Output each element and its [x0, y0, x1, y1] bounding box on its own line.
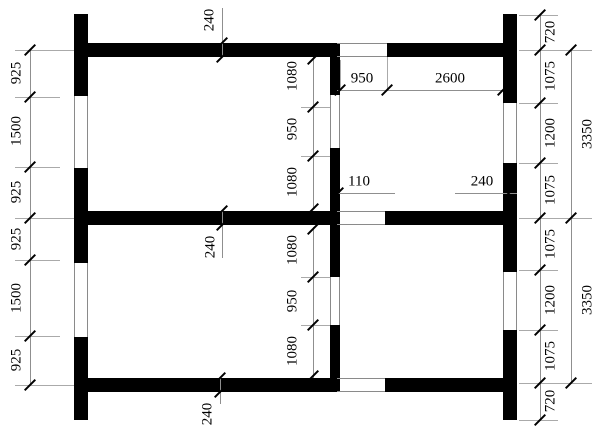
wall-bottom-left-run — [74, 378, 337, 392]
dim-label-right-8: 720 — [544, 390, 559, 413]
dim-label-total-bottom: 3350 — [581, 285, 596, 315]
dim-label-110: 110 — [348, 175, 370, 190]
ext-line — [15, 260, 60, 261]
dim-line-110 — [337, 193, 395, 194]
ext-line — [15, 385, 74, 386]
window-face — [74, 263, 75, 337]
dim-label-right-7: 1075 — [544, 341, 559, 371]
dim-label-right-1: 720 — [544, 21, 559, 44]
dim-chain-interior-lower — [313, 227, 314, 378]
dim-label-240-bottom: 240 — [201, 403, 216, 426]
opening-face — [337, 211, 385, 212]
ext-line — [15, 97, 60, 98]
dim-label-room-opening: 950 — [351, 72, 374, 87]
ext-line — [340, 60, 341, 90]
opening-face — [330, 277, 331, 325]
dim-label-left-4: 925 — [10, 228, 25, 251]
window-face — [87, 96, 88, 168]
dim-chain-interior-upper — [313, 57, 314, 209]
wall-top-left-run — [74, 43, 337, 57]
dim-label-int-lo-3: 1080 — [286, 336, 301, 366]
dim-label-left-6: 925 — [10, 349, 25, 372]
wall-middle-right-run — [385, 211, 517, 225]
dim-label-right-4: 1075 — [544, 175, 559, 205]
window-face — [74, 96, 75, 168]
dim-label-right-2: 1075 — [544, 61, 559, 91]
ext-line — [15, 50, 74, 51]
ext-line — [15, 218, 74, 219]
dim-line-240-middle — [222, 211, 223, 258]
window-face — [503, 103, 504, 163]
dim-label-240-room: 240 — [471, 175, 494, 190]
dim-line-room-top — [337, 90, 503, 91]
dim-label-int-up-3: 1080 — [286, 167, 301, 197]
dim-label-left-5: 1500 — [10, 283, 25, 313]
floor-plan-drawing: 925 1500 925 925 1500 925 720 1075 1200 … — [0, 0, 616, 434]
wall-bottom-right-run — [385, 378, 517, 392]
ext-line — [301, 277, 330, 278]
window-face — [503, 272, 504, 330]
window-face — [516, 272, 517, 330]
ext-line — [301, 156, 330, 157]
opening-face — [339, 95, 340, 148]
dim-label-right-3: 1200 — [544, 118, 559, 148]
dim-line-240-top — [222, 8, 223, 57]
wall-interior-upper — [330, 43, 340, 95]
wall-interior-lower — [330, 325, 340, 392]
opening-face — [337, 378, 385, 379]
dim-label-left-1: 925 — [10, 62, 25, 85]
opening-face — [337, 224, 385, 225]
window-face — [87, 263, 88, 337]
opening-face — [337, 43, 387, 44]
dim-label-int-up-2: 950 — [286, 118, 301, 141]
dim-label-left-3: 925 — [10, 181, 25, 204]
ext-line — [15, 167, 60, 168]
dim-label-total-top: 3350 — [581, 119, 596, 149]
dim-label-int-lo-1: 1080 — [286, 235, 301, 265]
dim-label-left-2: 1500 — [10, 116, 25, 146]
wall-middle-left-run — [74, 211, 337, 225]
opening-face — [337, 391, 385, 392]
ext-line — [301, 107, 330, 108]
dim-label-int-lo-2: 950 — [286, 290, 301, 313]
dim-label-240-top: 240 — [203, 9, 218, 32]
wall-top-right-run — [387, 43, 517, 57]
ext-line — [387, 57, 388, 90]
wall-right-lower — [503, 330, 517, 420]
wall-interior-middle — [330, 148, 340, 277]
dim-label-240-middle: 240 — [204, 236, 219, 259]
window-face — [516, 103, 517, 163]
ext-line — [301, 325, 330, 326]
dim-label-room-run: 2600 — [435, 72, 465, 87]
opening-face — [339, 277, 340, 325]
opening-face — [337, 56, 387, 57]
dim-label-right-5: 1075 — [544, 229, 559, 259]
opening-face — [330, 95, 331, 148]
wall-right-upper — [503, 14, 517, 103]
dim-label-int-up-1: 1080 — [286, 61, 301, 91]
ext-line — [15, 336, 60, 337]
dim-label-right-6: 1200 — [544, 285, 559, 315]
